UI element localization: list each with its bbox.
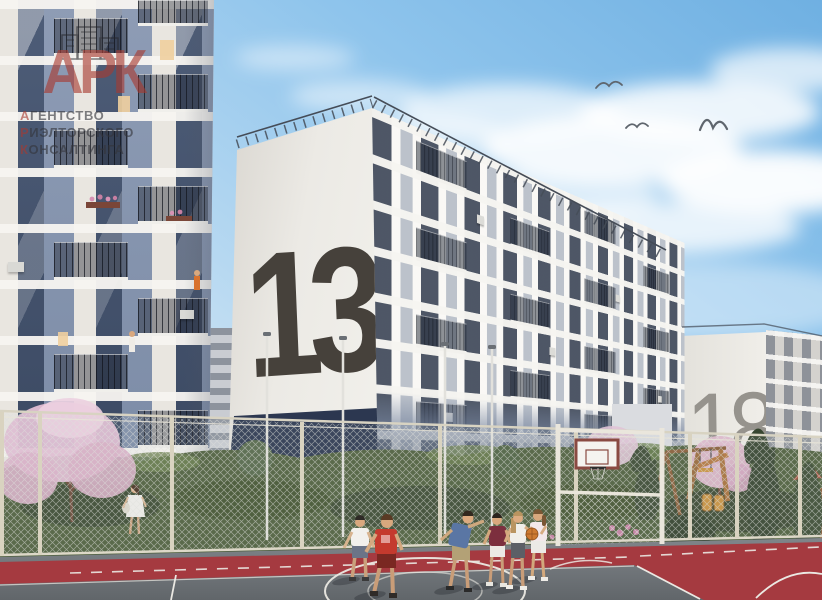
ark-logo: АРК: [42, 42, 142, 104]
watermark-line-3: КОНСАЛТИНГА: [20, 142, 124, 157]
watermark-line-2: РИЭЛТОРСКОГО: [20, 125, 134, 140]
watermark-line-1: АГЕНТСТВО: [20, 108, 104, 123]
roof-railings: [237, 96, 822, 336]
chain-link-fence: [0, 411, 822, 556]
goal-net: [560, 494, 660, 545]
basketball: [526, 528, 538, 540]
rendering-scene: 18 13: [0, 0, 822, 600]
agency-watermark: АРК АГЕНТСТВО РИЭЛТОРСКОГО КОНСАЛТИНГА: [16, 24, 156, 164]
balcony-residents: [86, 194, 200, 352]
